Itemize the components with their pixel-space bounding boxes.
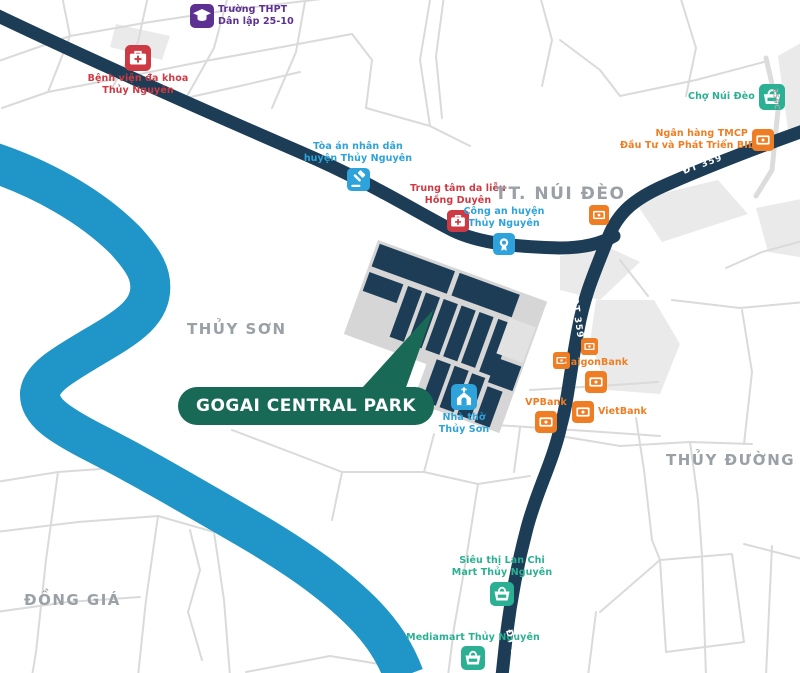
poi-bidv-label: Ngân hàng TMCP	[620, 128, 748, 140]
project-badge: GOGAI CENTRAL PARK	[178, 387, 434, 425]
poi-school-label2: Dân lập 25-10	[218, 16, 294, 28]
bank-atm-icon	[752, 129, 774, 151]
area-label-nui-deo: TT. NÚI ĐÈO	[495, 184, 625, 204]
poi-bidv: Ngân hàng TMCP Đầu Tư và Phát Triển BIDV	[620, 128, 774, 153]
poi-saigonbank: SaigonBank	[566, 357, 626, 393]
poi-lanchi: Siêu thị Lan Chi Mart Thủy Nguyên	[452, 555, 552, 606]
poi-vpbank: VPBank	[522, 397, 570, 433]
poi-hospital-label2: Thủy Nguyên	[88, 85, 189, 97]
hospital-icon	[125, 45, 151, 71]
poi-police-label2: Thủy Nguyên	[463, 218, 544, 230]
area-label-thuy-duong: THỦY ĐƯỜNG	[666, 451, 795, 469]
poi-derm-label: Trung tâm da liễu	[410, 183, 506, 195]
bank-atm-icon	[585, 371, 607, 393]
poi-police-label: Công an huyện	[463, 206, 544, 218]
poi-saigonbank-label: SaigonBank	[564, 357, 628, 369]
poi-market-label: Chợ Núi Đèo	[688, 91, 755, 103]
poi-atm-small-1	[581, 338, 598, 355]
school-icon	[190, 4, 214, 28]
poi-bidv-label2: Đầu Tư và Phát Triển BIDV	[620, 140, 748, 152]
poi-hospital-label: Bệnh viện đa khoa	[88, 73, 189, 85]
poi-school: Trường THPT Dân lập 25-10	[190, 4, 294, 29]
map-root: Trường THPT Dân lập 25-10 Bệnh viện đa k…	[0, 0, 800, 673]
basket-icon	[490, 582, 514, 606]
poi-lanchi-label2: Mart Thủy Nguyên	[452, 567, 552, 579]
poi-vpbank-label: VPBank	[525, 397, 567, 409]
poi-church: Nhà thờ Thủy Sơn	[436, 384, 492, 437]
area-label-thuy-son: THỦY SƠN	[187, 320, 287, 338]
poi-vietbank-label: VietBank	[598, 406, 647, 418]
area-label-dong-gia: ĐỒNG GIÁ	[24, 591, 121, 609]
poi-court: Tòa án nhân dân huyện Thủy Nguyên	[302, 141, 414, 191]
map-canvas	[0, 0, 800, 673]
poi-police: Công an huyện Thủy Nguyên	[452, 206, 556, 255]
poi-church-label2: Thủy Sơn	[439, 424, 489, 436]
poi-hospital: Bệnh viện đa khoa Thủy Nguyên	[68, 45, 208, 98]
poi-church-label: Nhà thờ	[439, 412, 489, 424]
court-icon	[347, 168, 370, 191]
bank-atm-icon	[581, 338, 598, 355]
basket-icon	[461, 646, 485, 670]
poi-school-label: Trường THPT	[218, 4, 294, 16]
poi-mediamart-label: Mediamart Thủy Nguyên	[406, 632, 540, 644]
church-icon	[451, 384, 477, 410]
poi-court-label: Tòa án nhân dân	[304, 141, 412, 153]
poi-vietbank: VietBank	[572, 401, 647, 423]
police-badge-icon	[493, 233, 515, 255]
poi-court-label2: huyện Thủy Nguyên	[304, 153, 412, 165]
poi-lanchi-label: Siêu thị Lan Chi	[452, 555, 552, 567]
bank-atm-icon	[589, 205, 609, 225]
road-359c	[756, 58, 778, 196]
bank-atm-icon	[535, 411, 557, 433]
bank-atm-icon	[572, 401, 594, 423]
poi-atm-junction	[589, 205, 609, 225]
